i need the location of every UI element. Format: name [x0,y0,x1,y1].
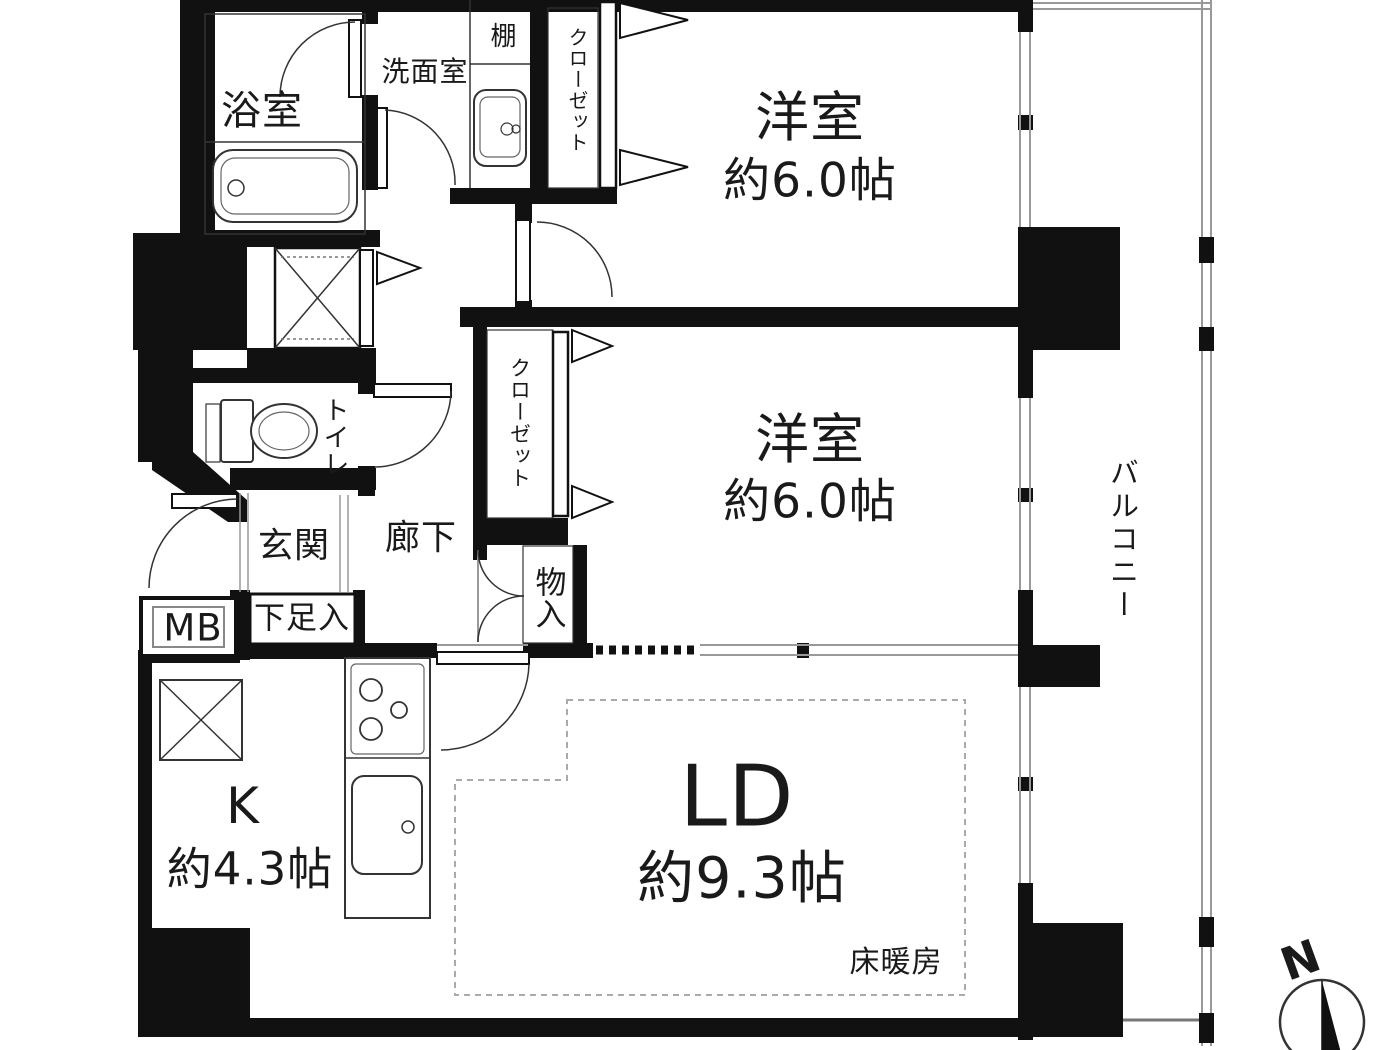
room-label-entrance: 玄関 [258,530,330,565]
room-label-toilet: トイレ [321,397,347,478]
room-label-bedroom-top: 洋室 [755,91,865,145]
room-label-closet-top: クローゼット [567,27,587,153]
compass-north-label: N [1275,932,1327,988]
room-size-bedroom-middle: 約6.0帖 [723,479,897,526]
room-label-kitchen: K [226,781,260,831]
room-label-bathroom: 浴室 [221,91,303,131]
room-label-balcony: バルコニー [1108,458,1137,623]
room-label-storage: 物入 [532,566,563,630]
room-size-kitchen: 約4.3帖 [167,847,334,892]
room-label-meter-box: MB [163,610,222,647]
room-label-shoe-cabinet: 下足入 [254,604,350,635]
label-floor-heating: 床暖房 [850,948,943,978]
room-label-bedroom-middle: 洋室 [755,413,865,467]
room-size-living-dining: 約9.3帖 [637,851,847,908]
room-label-shelf: 棚 [490,24,517,50]
floor-plan: 浴室 洗面室 棚 クローゼット 洋室 約6.0帖 洋室 約6.0帖 クローゼット… [0,0,1400,1050]
room-label-washroom: 洗面室 [381,58,468,86]
labels-layer: 浴室 洗面室 棚 クローゼット 洋室 約6.0帖 洋室 約6.0帖 クローゼット… [0,0,1400,1050]
room-label-living-dining: LD [680,755,795,840]
room-label-hallway: 廊下 [385,522,457,557]
room-size-bedroom-top: 約6.0帖 [723,158,897,205]
room-label-closet-middle: クローゼット [509,357,530,489]
